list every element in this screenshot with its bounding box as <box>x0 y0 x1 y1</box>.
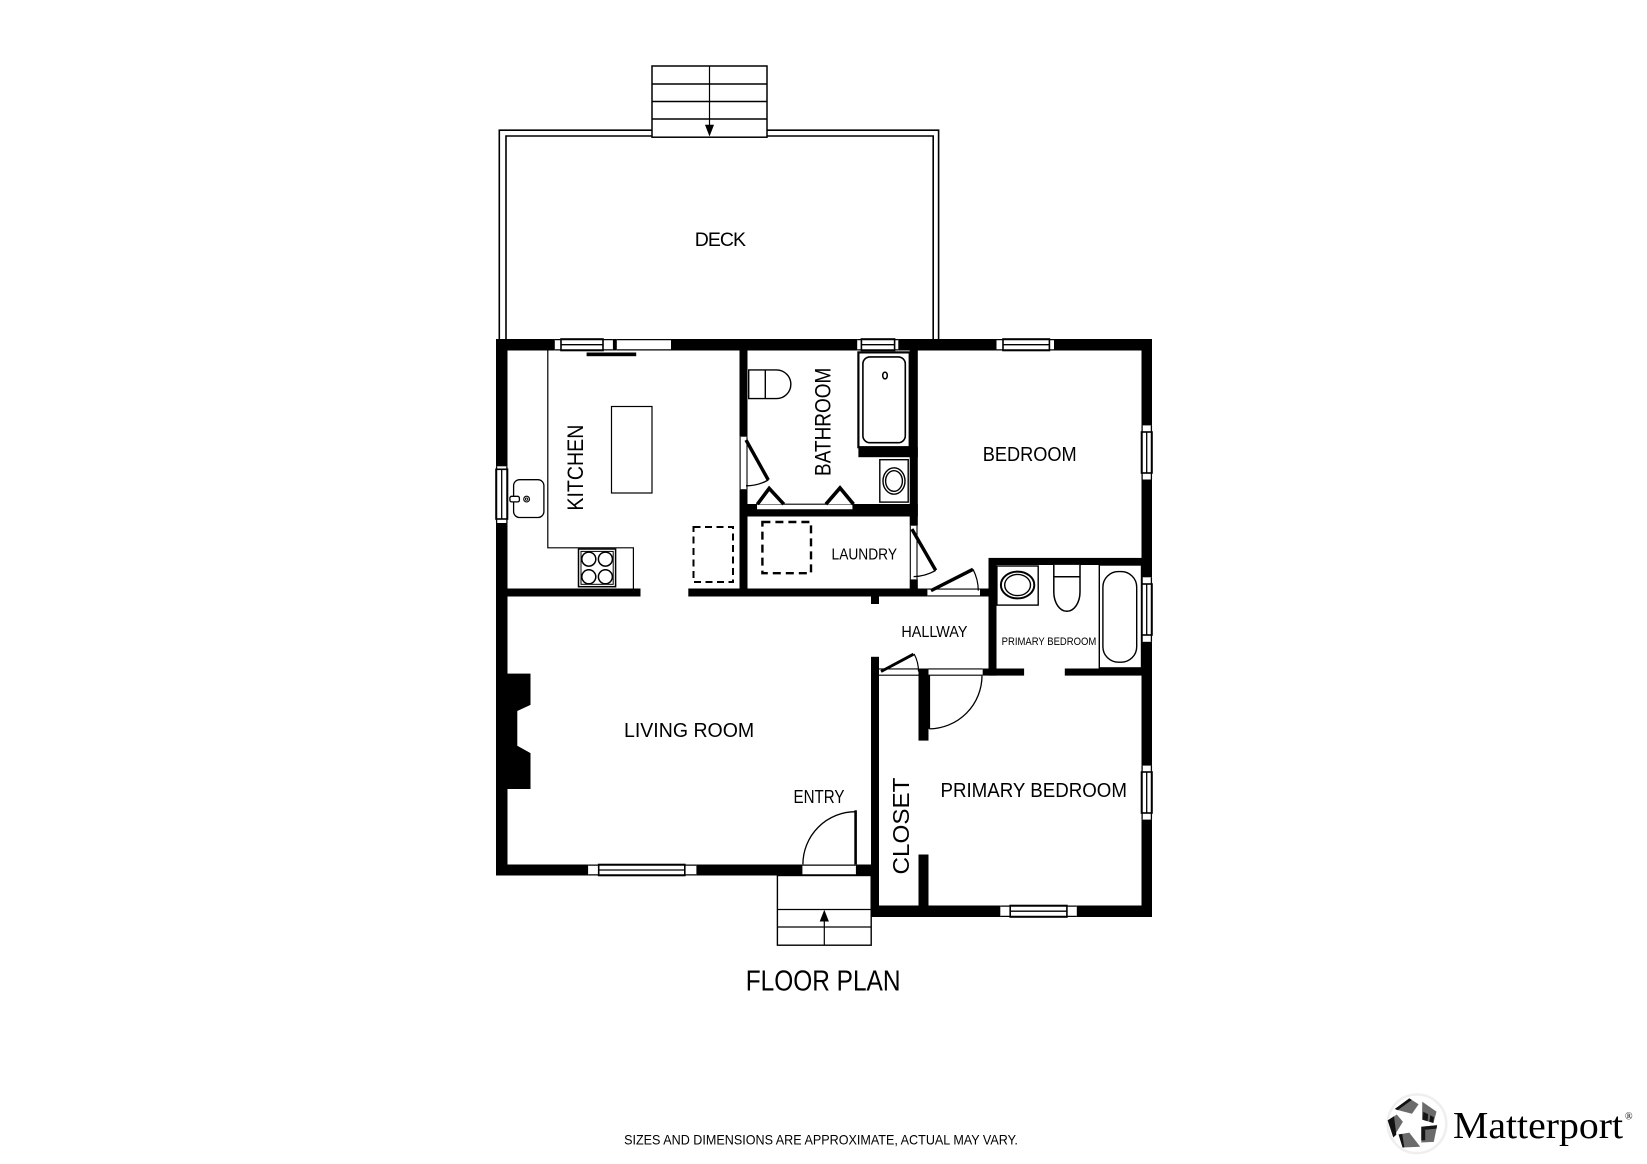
svg-text:LAUNDRY: LAUNDRY <box>832 547 898 564</box>
svg-text:LIVING ROOM: LIVING ROOM <box>624 720 754 742</box>
svg-text:BATHROOM: BATHROOM <box>811 368 836 476</box>
svg-text:®: ® <box>1625 1112 1633 1123</box>
svg-text:PRIMARY BEDROOM: PRIMARY BEDROOM <box>941 780 1127 802</box>
svg-text:HALLWAY: HALLWAY <box>901 624 967 641</box>
svg-text:SIZES AND DIMENSIONS ARE APPRO: SIZES AND DIMENSIONS ARE APPROXIMATE, AC… <box>624 1132 1018 1148</box>
svg-text:PRIMARY BEDROOM: PRIMARY BEDROOM <box>1002 636 1097 648</box>
svg-text:DECK: DECK <box>695 229 746 251</box>
svg-text:ENTRY: ENTRY <box>794 786 845 807</box>
svg-text:CLOSET: CLOSET <box>888 778 914 875</box>
svg-text:BEDROOM: BEDROOM <box>983 444 1077 466</box>
svg-text:FLOOR PLAN: FLOOR PLAN <box>746 966 901 998</box>
svg-text:Matterport: Matterport <box>1453 1105 1623 1147</box>
svg-text:KITCHEN: KITCHEN <box>563 425 588 511</box>
